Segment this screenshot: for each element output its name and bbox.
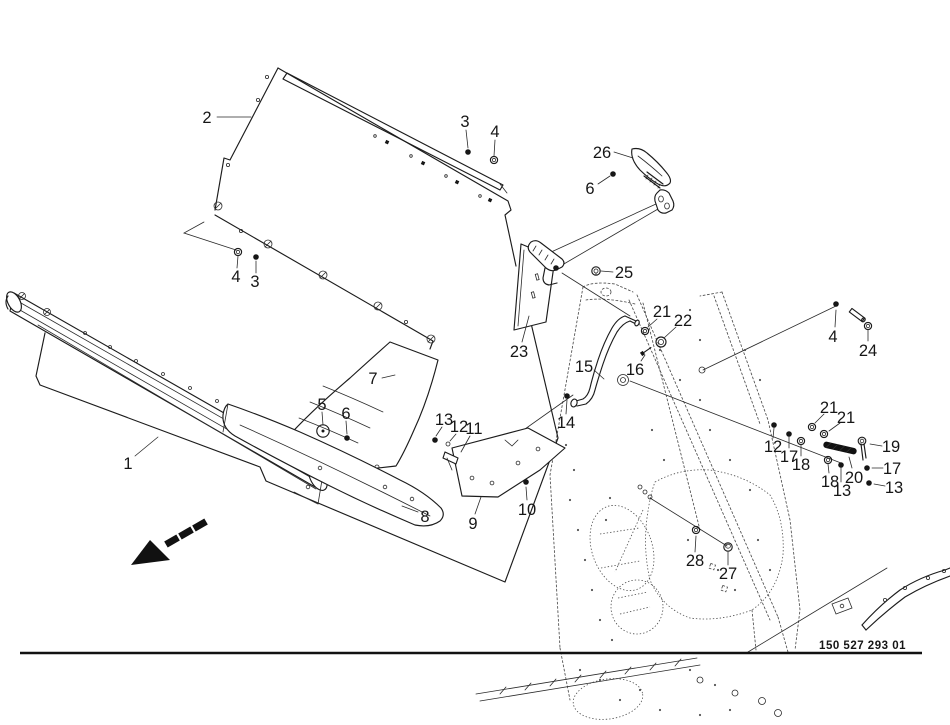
callout-label-16: 16 xyxy=(626,361,644,379)
callout-label-3: 3 xyxy=(460,113,469,131)
callout-label-23: 23 xyxy=(510,343,528,361)
leader-line-4 xyxy=(494,140,495,156)
leader-line-9 xyxy=(475,497,481,514)
screw-icon xyxy=(638,485,642,489)
callout-label-8: 8 xyxy=(420,508,429,526)
hex-bolt-icon xyxy=(833,301,839,307)
leader-line-19 xyxy=(870,444,882,446)
callout-label-26: 26 xyxy=(593,144,611,162)
callout-label-21: 21 xyxy=(820,399,838,417)
clamp-bolt-icon xyxy=(553,265,559,271)
screw-icon xyxy=(643,490,647,494)
washer-icon xyxy=(692,526,699,533)
arrow-dash xyxy=(192,518,208,531)
callout-label-14: 14 xyxy=(557,414,575,432)
lock-nut-icon xyxy=(592,267,600,275)
washer-icon xyxy=(824,456,831,463)
washer-icon xyxy=(490,156,497,163)
hex-bolt-icon xyxy=(344,435,350,441)
callout-label-21: 21 xyxy=(653,303,671,321)
leader-line-26 xyxy=(614,152,633,158)
leader-line-13 xyxy=(874,484,885,486)
callout-label-6: 6 xyxy=(585,180,594,198)
washer-icon xyxy=(797,437,804,444)
set-screw-icon xyxy=(640,346,652,356)
hex-bolt-icon xyxy=(786,431,792,437)
callout-label-18: 18 xyxy=(792,456,810,474)
washer-icon xyxy=(446,442,450,446)
callout-label-22: 22 xyxy=(674,312,692,330)
washer-icon xyxy=(234,248,241,255)
lower-panel xyxy=(36,202,558,582)
callout-label-13: 13 xyxy=(885,479,903,497)
leader-line-4 xyxy=(237,256,238,268)
callout-label-4: 4 xyxy=(231,268,240,286)
parts-diagram-page: 150 527 293 01 1234435678910111213141516… xyxy=(0,0,950,725)
hex-bolt-icon xyxy=(465,149,471,155)
machine-frame-phantom xyxy=(476,283,950,724)
part-2-cover-panel xyxy=(215,68,516,266)
washer-icon xyxy=(820,430,827,437)
callout-label-3: 3 xyxy=(250,273,259,291)
leader-line-3 xyxy=(466,130,468,148)
hex-bolt-icon xyxy=(864,465,870,471)
callout-label-7: 7 xyxy=(368,370,377,388)
washer-icon xyxy=(808,423,815,430)
leader-line-14 xyxy=(566,400,567,414)
leader-line-1 xyxy=(135,437,158,456)
hex-bolt-icon xyxy=(866,480,872,486)
callout-label-25: 25 xyxy=(615,264,633,282)
tension-spring-icon xyxy=(823,441,858,455)
callout-label-28: 28 xyxy=(686,552,704,570)
washer-icon xyxy=(864,322,871,329)
hex-bolt-icon xyxy=(253,254,259,260)
leader-line-20 xyxy=(849,457,852,468)
leader-line-25 xyxy=(601,271,613,272)
pivot-bolt-icon xyxy=(564,393,570,399)
exploded-diagram-canvas: 150 527 293 01 1234435678910111213141516… xyxy=(0,0,950,725)
part-1-beam xyxy=(4,289,331,504)
clevis-pin-icon xyxy=(849,308,866,322)
callout-label-15: 15 xyxy=(575,358,593,376)
callout-label-1: 1 xyxy=(123,455,132,473)
callout-labels: 1234435678910111213141516212223252664242… xyxy=(123,109,903,583)
callout-label-2: 2 xyxy=(202,109,211,127)
arrow-dash xyxy=(178,526,194,539)
callout-label-17: 17 xyxy=(883,460,901,478)
leader-line-10 xyxy=(526,487,527,500)
callout-label-13: 13 xyxy=(435,411,453,429)
callout-label-10: 10 xyxy=(518,501,536,519)
part-26-lever xyxy=(632,149,674,214)
arrow-dash xyxy=(164,534,180,547)
callout-label-9: 9 xyxy=(468,515,477,533)
callout-label-6: 6 xyxy=(341,405,350,423)
leader-line-18 xyxy=(828,464,829,473)
hex-bolt-icon xyxy=(610,171,616,177)
direction-arrow xyxy=(131,518,208,565)
arrowhead xyxy=(131,540,170,565)
washer-icon xyxy=(641,327,648,334)
carriage-bolt-icon xyxy=(724,543,732,551)
callout-label-24: 24 xyxy=(859,342,877,360)
callout-label-27: 27 xyxy=(719,565,737,583)
drawing-number: 150 527 293 01 xyxy=(819,640,906,652)
leader-line-28 xyxy=(695,536,696,552)
fastener-glyphs xyxy=(234,149,871,551)
panel-holes xyxy=(214,202,435,343)
hex-bolt-icon xyxy=(523,479,529,485)
callout-label-4: 4 xyxy=(828,328,837,346)
callout-label-20: 20 xyxy=(845,469,863,487)
hex-bolt-icon xyxy=(838,462,844,468)
callout-label-19: 19 xyxy=(882,438,900,456)
callout-label-5: 5 xyxy=(317,396,326,414)
leader-line-4 xyxy=(835,310,836,327)
callout-label-4: 4 xyxy=(490,123,499,141)
hex-bolt-icon xyxy=(432,437,438,443)
callout-label-21: 21 xyxy=(837,409,855,427)
hex-bolt-icon xyxy=(771,422,777,428)
leader-line-6 xyxy=(598,176,610,184)
linch-pin-icon xyxy=(858,437,866,460)
